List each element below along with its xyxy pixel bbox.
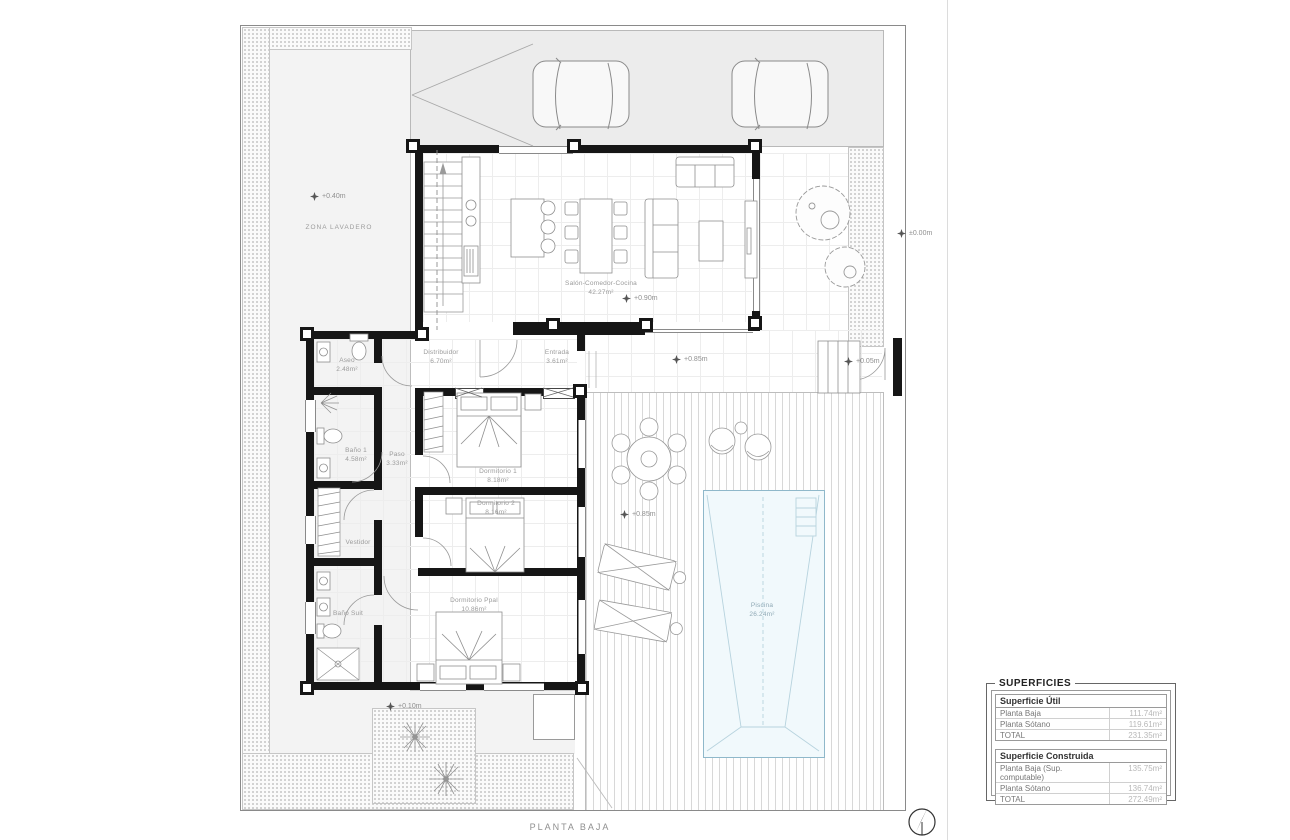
benchmark-icon xyxy=(386,702,395,711)
room-label-entrada: Entrada 3.61m² xyxy=(517,348,597,366)
row-value: 136.74m² xyxy=(1110,783,1166,793)
patio-chairs xyxy=(709,422,771,460)
sun-lounger xyxy=(594,600,685,645)
sofa xyxy=(645,157,757,278)
zone-label-text: ZONA LAVADERO xyxy=(306,224,373,231)
stairs-icon xyxy=(424,162,463,312)
plant-icon xyxy=(400,722,463,796)
bed xyxy=(417,612,520,684)
level-value: +0.10m xyxy=(398,703,422,710)
wardrobe xyxy=(318,392,443,556)
room-area: 3.61m² xyxy=(546,358,567,365)
table-row: Planta Sótano 136.74m² xyxy=(996,783,1166,794)
room-area: 6.70m² xyxy=(430,358,451,365)
room-name: Piscina xyxy=(751,602,773,609)
benchmark-icon xyxy=(672,355,681,364)
level-marker: +0.85m xyxy=(620,510,656,519)
table-row: Planta Baja 111.74m² xyxy=(996,708,1166,719)
kitchen-island xyxy=(511,199,555,257)
car-icon xyxy=(732,58,828,130)
superficies-title: SUPERFICIES xyxy=(995,678,1075,689)
room-name: Aseo xyxy=(339,357,355,364)
room-name: Paso xyxy=(389,451,405,458)
sheet-title-text: PLANTA BAJA xyxy=(530,822,611,832)
patio-table xyxy=(612,418,686,500)
benchmark-icon xyxy=(622,294,631,303)
superficie-construida-table: Superficie Construida Planta Baja (Sup. … xyxy=(995,749,1167,805)
level-marker: +0.85m xyxy=(672,355,708,364)
room-label-dormitorio1: Dormitorio 1 8.18m² xyxy=(448,467,548,485)
pool-floor-lines xyxy=(707,495,819,751)
bush-icon xyxy=(796,186,865,287)
level-marker: +0.90m xyxy=(622,294,658,303)
room-name: Salón-Comedor-Cocina xyxy=(565,280,637,287)
table-row: Planta Baja (Sup. computable) 135.75m² xyxy=(996,763,1166,783)
room-area: 8.16m² xyxy=(485,509,506,516)
benchmark-icon xyxy=(620,510,629,519)
room-area: 42.27m² xyxy=(588,289,613,296)
room-area: 8.18m² xyxy=(487,477,508,484)
room-area: 26.24m² xyxy=(749,611,774,618)
room-name: Dormitorio 1 xyxy=(479,468,517,475)
room-label-vestidor: Vestidor xyxy=(323,538,393,547)
floor-plan-sheet: Salón-Comedor-Cocina 42.27m² Distribuido… xyxy=(0,0,1290,840)
level-marker: ±0.00m xyxy=(897,229,932,238)
table-row: Planta Sótano 119.61m² xyxy=(996,719,1166,730)
row-label: TOTAL xyxy=(996,730,1110,740)
superficies-panel: SUPERFICIES Superficie Útil Planta Baja … xyxy=(986,683,1176,801)
row-value: 111.74m² xyxy=(1110,708,1166,718)
level-marker: +0.10m xyxy=(386,702,422,711)
level-value: +0.05m xyxy=(856,358,880,365)
row-label: TOTAL xyxy=(996,794,1110,804)
room-label-aseo: Aseo 2.48m² xyxy=(312,356,382,374)
level-value: +0.40m xyxy=(322,193,346,200)
benchmark-icon xyxy=(844,357,853,366)
level-value: +0.85m xyxy=(632,511,656,518)
door-arc xyxy=(344,340,885,625)
room-name: Distribuidor xyxy=(423,349,458,356)
zone-label-lavadero: ZONA LAVADERO xyxy=(294,223,384,232)
exterior-stairs xyxy=(818,341,860,393)
level-value: +0.85m xyxy=(684,356,708,363)
level-value: ±0.00m xyxy=(909,230,932,237)
level-value: +0.90m xyxy=(634,295,658,302)
dining-table xyxy=(565,199,627,273)
level-marker: +0.05m xyxy=(844,357,880,366)
table-row: TOTAL 231.35m² xyxy=(996,730,1166,740)
toilet-icon xyxy=(317,334,368,638)
room-name: Dormitorio Ppal xyxy=(450,597,498,604)
room-name: Dormitorio 2 xyxy=(477,500,515,507)
room-label-dormitorio2: Dormitorio 2 8.16m² xyxy=(446,499,546,517)
room-name: Vestidor xyxy=(345,539,370,546)
table-header: Superficie Construida xyxy=(996,750,1166,763)
level-marker: +0.40m xyxy=(310,192,346,201)
room-name: Entrada xyxy=(545,349,569,356)
north-arrow-icon xyxy=(909,807,935,835)
room-label-piscina: Piscina 26.24m² xyxy=(712,601,812,619)
kitchen-counter xyxy=(462,157,480,283)
row-value: 135.75m² xyxy=(1110,763,1166,782)
room-label-paso: Paso 3.33m² xyxy=(362,450,432,468)
row-label: Planta Sótano xyxy=(996,783,1110,793)
superficies-inner-frame: Superficie Útil Planta Baja 111.74m² Pla… xyxy=(991,690,1171,796)
benchmark-icon xyxy=(310,192,319,201)
sheet-title: PLANTA BAJA xyxy=(480,822,660,832)
room-area: 10.86m² xyxy=(461,606,486,613)
row-value: 231.35m² xyxy=(1110,730,1166,740)
room-name: Baño Suit xyxy=(333,610,363,617)
table-row: TOTAL 272.49m² xyxy=(996,794,1166,804)
row-value: 272.49m² xyxy=(1110,794,1166,804)
table-header: Superficie Útil xyxy=(996,695,1166,708)
row-label: Planta Sótano xyxy=(996,719,1110,729)
row-label: Planta Baja (Sup. computable) xyxy=(996,763,1110,782)
row-label: Planta Baja xyxy=(996,708,1110,718)
room-area: 2.48m² xyxy=(336,366,357,373)
sink-icon xyxy=(317,342,330,616)
bed xyxy=(457,393,541,467)
room-area: 3.33m² xyxy=(386,460,407,467)
row-value: 119.61m² xyxy=(1110,719,1166,729)
superficie-util-table: Superficie Útil Planta Baja 111.74m² Pla… xyxy=(995,694,1167,741)
room-label-distribuidor: Distribuidor 6.70m² xyxy=(401,348,481,366)
car-icon xyxy=(533,58,629,130)
deck-diagonal xyxy=(577,758,612,808)
sun-lounger xyxy=(597,543,689,593)
room-label-banosuit: Baño Suit xyxy=(313,609,383,618)
room-label-dormppal: Dormitorio Ppal 10.86m² xyxy=(424,596,524,614)
superficies-frame: SUPERFICIES Superficie Útil Planta Baja … xyxy=(986,683,1176,801)
driveway-lines xyxy=(412,44,533,146)
benchmark-icon xyxy=(897,229,906,238)
